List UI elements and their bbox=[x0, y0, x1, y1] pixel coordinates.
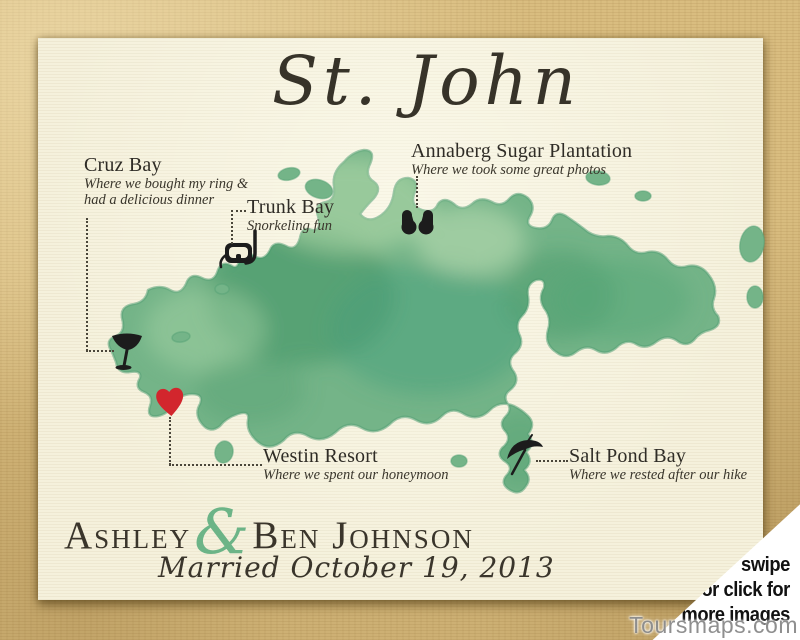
leader-line-salt-pond-horizontal bbox=[536, 460, 568, 462]
leader-line-cruz-vertical bbox=[86, 218, 88, 351]
location-label-salt-pond-bay: Salt Pond Bay Where we rested after our … bbox=[569, 446, 747, 483]
location-label-cruz-bay: Cruz Bay Where we bought my ring & had a… bbox=[84, 155, 248, 208]
location-name: Trunk Bay bbox=[247, 197, 334, 218]
page-background: St. John Cruz Bay Where we bought my rin… bbox=[0, 0, 800, 640]
leader-line-trunk-vertical bbox=[231, 210, 233, 244]
site-watermark: Toursmaps.com bbox=[629, 612, 798, 639]
leader-line-westin-horizontal bbox=[169, 464, 262, 466]
location-label-westin-resort: Westin Resort Where we spent our honeymo… bbox=[263, 446, 449, 483]
map-title: St. John bbox=[272, 42, 581, 120]
location-name: Cruz Bay bbox=[84, 155, 248, 176]
location-note-line-2: had a delicious dinner bbox=[84, 192, 248, 208]
location-note-line-1: Where we bought my ring & bbox=[84, 176, 248, 192]
location-note-line-1: Where we rested after our hike bbox=[569, 467, 747, 483]
location-label-trunk-bay: Trunk Bay Snorkeling fun bbox=[247, 197, 334, 234]
location-note-line-1: Snorkeling fun bbox=[247, 218, 334, 234]
location-note-line-1: Where we spent our honeymoon bbox=[263, 467, 449, 483]
couple-names: Ashley & Ben Johnson bbox=[64, 496, 474, 558]
leader-line-trunk-horizontal bbox=[231, 210, 246, 212]
groom-name: Ben Johnson bbox=[252, 516, 473, 555]
location-note-line-1: Where we took some great photos bbox=[411, 162, 632, 178]
location-name: Salt Pond Bay bbox=[569, 446, 747, 467]
leader-line-annaberg-vertical bbox=[416, 176, 418, 208]
bride-name: Ashley bbox=[64, 516, 191, 555]
leader-line-cruz-horizontal bbox=[86, 350, 114, 352]
location-label-annaberg-sugar-plantation: Annaberg Sugar Plantation Where we took … bbox=[411, 141, 632, 178]
location-name: Annaberg Sugar Plantation bbox=[411, 141, 632, 162]
leader-line-westin-vertical bbox=[169, 417, 171, 465]
wedding-date-caption: Married October 19, 2013 bbox=[158, 551, 555, 584]
location-name: Westin Resort bbox=[263, 446, 449, 467]
